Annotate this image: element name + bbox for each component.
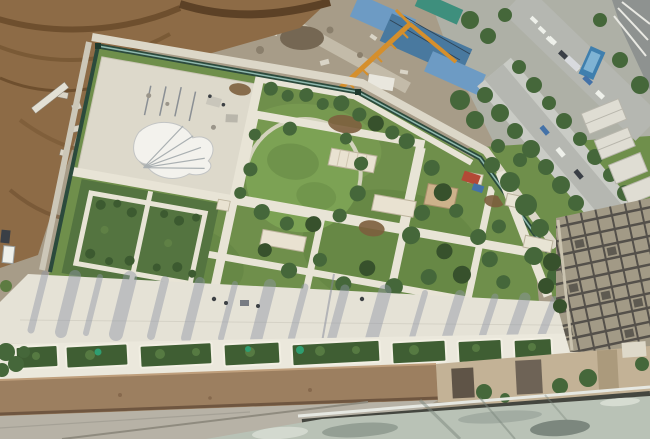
aerial-photo-canvas (0, 0, 650, 439)
aerial-photo (0, 0, 650, 439)
